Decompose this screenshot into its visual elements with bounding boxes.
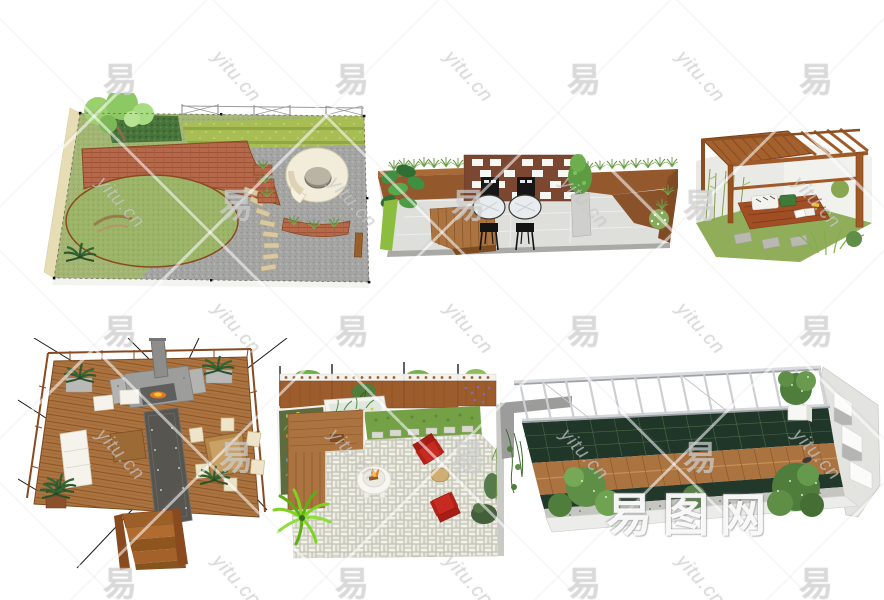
watermark-script: yitu.cn — [671, 551, 729, 600]
render-timber-deck-fireplace — [18, 338, 291, 570]
garden-bench — [354, 233, 362, 257]
courtyard-svg — [268, 360, 504, 559]
watermark-glyph: 易 — [799, 53, 833, 102]
linear-patio-svg — [372, 143, 694, 265]
render-garden-plan-spiral-pavilion — [42, 93, 372, 289]
watermark-glyph: 易 — [567, 557, 601, 600]
white-flower-bush — [649, 209, 669, 229]
render-paver-courtyard-fire-table — [268, 360, 504, 559]
watermark-script: yitu.cn — [439, 299, 497, 360]
lattice-fence — [280, 374, 496, 408]
pergola-svg — [688, 127, 880, 266]
watermark-glyph: 易 — [799, 557, 833, 600]
watermark-script: yitu.cn — [439, 47, 497, 108]
boundary-fence — [182, 104, 364, 116]
watermark-glyph: 易 — [335, 305, 369, 354]
collage-canvas: 易yitu.cn易yitu.cn易yitu.cn易yitu.cnyitu.cn易… — [0, 0, 884, 600]
watermark-glyph: 易 — [567, 305, 601, 354]
deck-bench-small — [330, 434, 344, 442]
terrace-svg — [490, 365, 882, 544]
render-linear-patio-brick-screen — [372, 143, 694, 265]
shrub-right — [831, 180, 849, 198]
shrub-bottom-right — [846, 231, 862, 247]
watermark-glyph: 易 — [799, 305, 833, 354]
side-table — [431, 468, 449, 482]
spiral-pavilion — [286, 148, 348, 203]
garden-plan-svg — [42, 93, 372, 289]
render-rooftop-terrace — [490, 365, 882, 544]
watermark-script: yitu.cn — [671, 47, 729, 108]
watermark-glyph: 易 — [335, 557, 369, 600]
deck-svg — [18, 338, 291, 570]
watermark-script: yitu.cn — [671, 299, 729, 360]
render-timber-pergola-daybed — [688, 127, 880, 266]
watermark-glyph: 易 — [567, 53, 601, 102]
deck-steps — [114, 508, 188, 570]
